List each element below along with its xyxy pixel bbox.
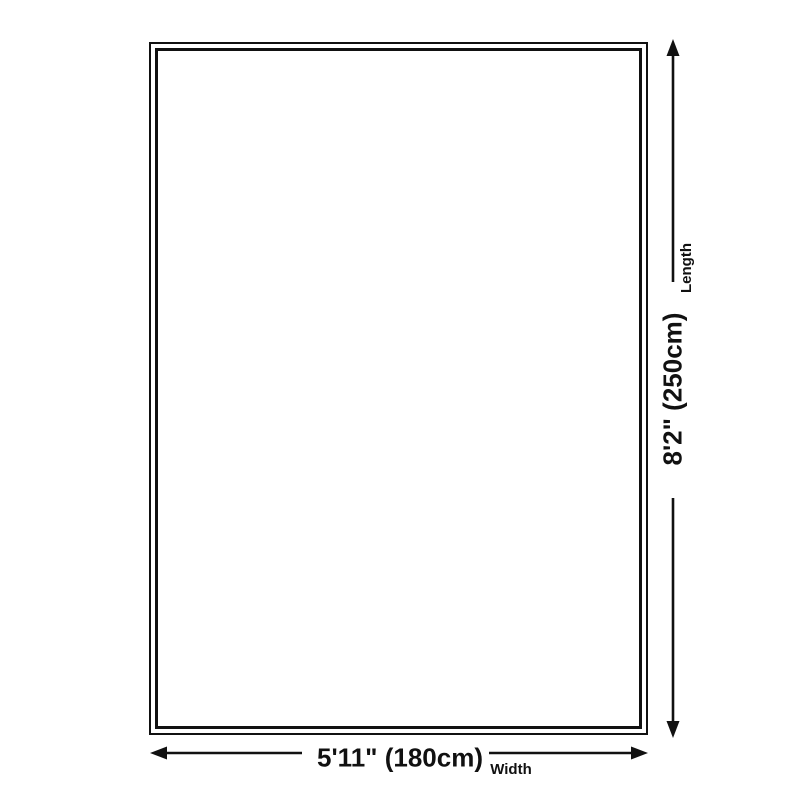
dimension-diagram: 5'11" (180cm) Width 8'2" (250cm) Length	[0, 0, 800, 800]
width-arrow-left-head-icon	[150, 747, 167, 760]
width-value: 5'11" (180cm)	[311, 744, 489, 773]
width-arrow-right-head-icon	[631, 747, 648, 760]
length-arrow-up-head-icon	[667, 39, 680, 56]
length-arrow-down-head-icon	[667, 721, 680, 738]
length-value: 8'2" (250cm)	[659, 307, 688, 472]
width-label: Width	[490, 762, 532, 779]
length-label: Length	[679, 243, 696, 293]
